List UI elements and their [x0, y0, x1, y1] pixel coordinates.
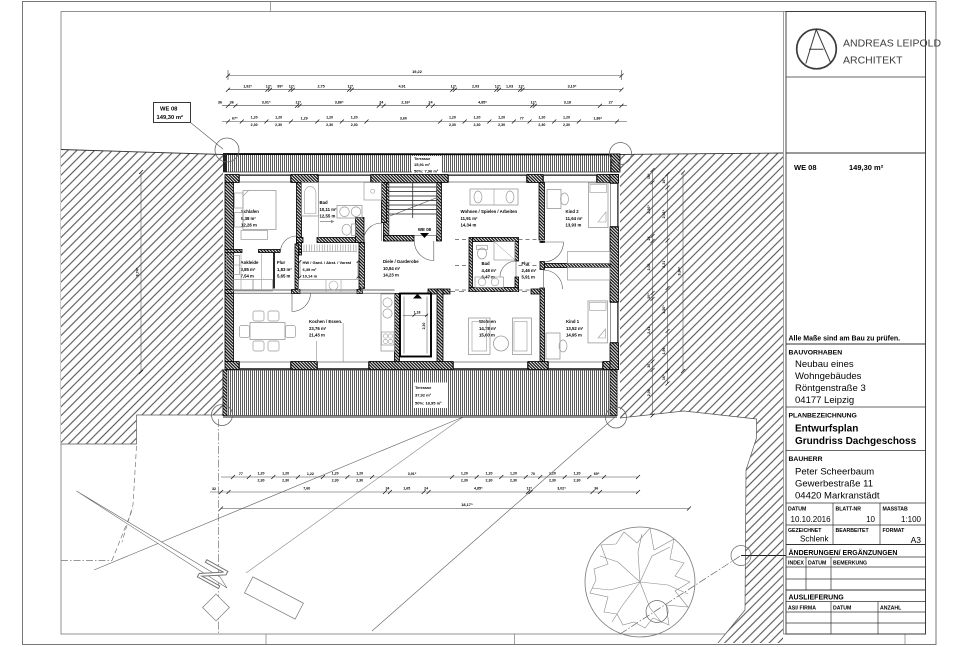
svg-text:1,83 m²: 1,83 m² [277, 267, 292, 272]
svg-text:14,23 m: 14,23 m [383, 273, 399, 278]
svg-text:11,91 m²: 11,91 m² [461, 216, 479, 221]
svg-text:1,22: 1,22 [307, 472, 314, 476]
svg-text:2,30: 2,30 [498, 123, 505, 127]
svg-text:1:100: 1:100 [901, 515, 922, 524]
svg-text:BAUVORHABEN: BAUVORHABEN [789, 350, 843, 357]
svg-text:19,22: 19,22 [412, 69, 423, 74]
svg-text:2,30: 2,30 [538, 123, 545, 127]
svg-text:1,29: 1,29 [301, 117, 308, 121]
svg-text:Bad: Bad [320, 200, 328, 205]
svg-text:2,30: 2,30 [332, 479, 339, 483]
svg-text:GEZEICHNET: GEZEICHNET [788, 528, 822, 534]
svg-text:BAUHERR: BAUHERR [789, 456, 823, 463]
svg-text:Peter Scheerbaum: Peter Scheerbaum [795, 467, 874, 478]
svg-text:3,02⁵: 3,02⁵ [557, 487, 566, 491]
svg-text:2,36⁵: 2,36⁵ [647, 205, 651, 214]
svg-text:12⁵: 12⁵ [348, 84, 354, 88]
svg-text:ARCHITEKT: ARCHITEKT [843, 55, 903, 67]
svg-text:2,30: 2,30 [563, 123, 570, 127]
svg-text:Diele / Garderobe: Diele / Garderobe [383, 259, 419, 264]
svg-text:ÄNDERUNGEN/ ERGÄNZUNGEN: ÄNDERUNGEN/ ERGÄNZUNGEN [789, 549, 898, 557]
svg-text:1,20: 1,20 [538, 116, 545, 120]
svg-text:4,85⁵: 4,85⁵ [474, 487, 483, 491]
svg-text:2,30: 2,30 [356, 479, 363, 483]
svg-text:DATUM: DATUM [833, 606, 851, 612]
svg-text:Neubau eines: Neubau eines [795, 359, 854, 370]
svg-text:10,11 m²: 10,11 m² [320, 207, 338, 212]
svg-text:2,30: 2,30 [275, 123, 282, 127]
svg-text:2,03: 2,03 [472, 84, 479, 88]
svg-text:DATUM: DATUM [788, 507, 806, 513]
svg-text:23,76 m²: 23,76 m² [309, 326, 327, 331]
svg-text:INDEX: INDEX [788, 561, 804, 567]
svg-text:99⁵: 99⁵ [277, 84, 283, 88]
svg-text:1,20: 1,20 [251, 116, 258, 120]
svg-text:149,30 m²: 149,30 m² [157, 114, 183, 121]
svg-text:7,54 m: 7,54 m [241, 274, 255, 279]
svg-text:1,20: 1,20 [449, 116, 456, 120]
svg-text:7,60: 7,60 [303, 487, 310, 491]
svg-text:1,86⁵: 1,86⁵ [594, 117, 603, 121]
svg-text:3,86⁵: 3,86⁵ [335, 100, 344, 104]
svg-text:2,16⁵: 2,16⁵ [401, 100, 410, 104]
svg-text:27: 27 [609, 100, 613, 104]
svg-text:70: 70 [531, 472, 535, 476]
svg-text:Flur: Flur [277, 260, 285, 265]
svg-text:1,18: 1,18 [414, 310, 421, 314]
svg-text:2,41: 2,41 [647, 327, 651, 334]
svg-text:2,30: 2,30 [474, 123, 481, 127]
svg-text:3,91⁵: 3,91⁵ [408, 472, 417, 476]
svg-text:36: 36 [230, 100, 234, 104]
svg-text:A3: A3 [911, 535, 922, 545]
svg-text:1,92⁵: 1,92⁵ [243, 84, 252, 88]
svg-text:77: 77 [239, 472, 243, 476]
svg-text:13,52 m²: 13,52 m² [566, 326, 584, 331]
svg-text:12⁵: 12⁵ [531, 100, 537, 104]
svg-text:18,17⁵: 18,17⁵ [461, 502, 473, 507]
svg-text:24: 24 [424, 487, 428, 491]
svg-text:14,34 m: 14,34 m [461, 223, 477, 228]
svg-text:50%: 7,96 m²: 50%: 7,96 m² [414, 168, 439, 173]
svg-text:Wohnen / Spielen / Arbeiten: Wohnen / Spielen / Arbeiten [461, 209, 518, 214]
svg-text:13,93 m: 13,93 m [566, 223, 582, 228]
svg-text:ASI/ FIRMA: ASI/ FIRMA [788, 606, 816, 612]
svg-text:1,20: 1,20 [282, 471, 289, 475]
svg-text:4,48 m²: 4,48 m² [482, 268, 497, 273]
svg-text:12⁵: 12⁵ [518, 84, 524, 88]
svg-text:04420 Markranstädt: 04420 Markranstädt [795, 491, 880, 502]
svg-text:Röntgenstraße 3: Röntgenstraße 3 [795, 383, 866, 394]
svg-text:WE 08: WE 08 [160, 107, 178, 113]
svg-text:Entwurfsplan: Entwurfsplan [795, 424, 858, 435]
svg-text:1,20: 1,20 [356, 471, 363, 475]
svg-text:37,92 m²: 37,92 m² [415, 393, 432, 398]
svg-text:ANDREAS LEIPOLD: ANDREAS LEIPOLD [843, 38, 941, 50]
svg-text:10.10.2016: 10.10.2016 [791, 515, 832, 524]
svg-text:AUSLIEFERUNG: AUSLIEFERUNG [789, 595, 845, 602]
svg-text:24: 24 [647, 237, 651, 241]
svg-text:1,20: 1,20 [574, 471, 581, 475]
svg-text:12,55 m: 12,55 m [320, 214, 336, 219]
svg-text:12⁵: 12⁵ [266, 84, 272, 88]
svg-text:DATUM: DATUM [808, 561, 826, 567]
svg-text:15,60 m: 15,60 m [479, 333, 495, 338]
svg-text:1,20: 1,20 [326, 116, 333, 120]
svg-text:Schlenk: Schlenk [800, 535, 829, 544]
svg-text:2,21: 2,21 [662, 261, 666, 268]
svg-text:2,30: 2,30 [282, 479, 289, 483]
svg-text:Kind 2: Kind 2 [566, 209, 580, 214]
svg-text:12⁵: 12⁵ [451, 84, 457, 88]
svg-text:32: 32 [212, 487, 216, 491]
svg-text:3,01⁵: 3,01⁵ [262, 100, 271, 104]
svg-text:1,20: 1,20 [275, 116, 282, 120]
svg-text:1,20: 1,20 [474, 116, 481, 120]
svg-text:16⁵: 16⁵ [662, 374, 666, 380]
svg-text:149,30 m²: 149,30 m² [849, 163, 884, 172]
svg-text:1,20: 1,20 [461, 471, 468, 475]
svg-text:36: 36 [647, 364, 651, 368]
svg-text:2,30: 2,30 [486, 479, 493, 483]
svg-text:3,60: 3,60 [400, 117, 407, 121]
svg-text:69⁵: 69⁵ [594, 472, 600, 476]
svg-text:1,65: 1,65 [403, 487, 410, 491]
svg-text:BEMERKUNG: BEMERKUNG [833, 561, 867, 567]
svg-text:Schlafen: Schlafen [241, 209, 259, 214]
svg-text:1,36⁵: 1,36⁵ [662, 305, 666, 314]
svg-text:12⁵: 12⁵ [495, 84, 501, 88]
svg-text:5,91 m: 5,91 m [522, 275, 536, 280]
svg-text:4,85⁵: 4,85⁵ [478, 100, 487, 104]
svg-text:ANZAHL: ANZAHL [880, 606, 902, 612]
svg-text:15,91 m²: 15,91 m² [414, 162, 431, 167]
svg-text:2,30: 2,30 [574, 479, 581, 483]
svg-text:Kind 1: Kind 1 [566, 319, 580, 324]
svg-text:1,20: 1,20 [332, 471, 339, 475]
svg-text:FORMAT: FORMAT [883, 528, 906, 534]
svg-text:Terrasse: Terrasse [415, 385, 432, 390]
svg-text:5,65 m: 5,65 m [277, 274, 291, 279]
svg-text:2,46 m²: 2,46 m² [522, 268, 537, 273]
svg-text:10: 10 [866, 515, 875, 524]
svg-text:12⁵: 12⁵ [295, 100, 301, 104]
svg-text:3,10⁵: 3,10⁵ [568, 84, 577, 88]
svg-text:2,06: 2,06 [647, 264, 651, 271]
svg-text:Terrasse: Terrasse [414, 156, 431, 161]
svg-text:Gewerbestraße 11: Gewerbestraße 11 [795, 479, 873, 490]
svg-text:2,06: 2,06 [647, 389, 651, 396]
svg-text:1,20: 1,20 [549, 471, 556, 475]
svg-text:9,64⁵: 9,64⁵ [678, 266, 682, 275]
svg-text:MASSTAB: MASSTAB [883, 507, 909, 513]
svg-text:BEARBEITET: BEARBEITET [836, 528, 870, 534]
svg-text:6,39 m²: 6,39 m² [303, 267, 317, 272]
svg-text:14,78 m²: 14,78 m² [479, 326, 497, 331]
svg-text:Wohngebäudes: Wohngebäudes [795, 371, 862, 382]
svg-text:10,14 m: 10,14 m [303, 274, 318, 279]
svg-text:77: 77 [520, 117, 524, 121]
svg-text:2,30: 2,30 [449, 123, 456, 127]
svg-text:HW / Gard. / Abst. / Vorrat: HW / Gard. / Abst. / Vorrat [303, 260, 352, 265]
svg-text:2,01⁵: 2,01⁵ [662, 209, 666, 218]
svg-text:2,30: 2,30 [549, 479, 556, 483]
svg-text:04177 Leipzig: 04177 Leipzig [795, 395, 854, 406]
svg-text:30⁵: 30⁵ [647, 293, 651, 299]
svg-text:21,43 m: 21,43 m [309, 333, 325, 338]
svg-text:16⁵: 16⁵ [662, 178, 666, 184]
svg-text:16⁵: 16⁵ [647, 173, 651, 179]
svg-text:WE 08: WE 08 [794, 163, 817, 172]
svg-text:PLANBEZEICHNUNG: PLANBEZEICHNUNG [789, 413, 857, 420]
svg-text:2,30: 2,30 [422, 323, 426, 330]
svg-text:9,74⁵: 9,74⁵ [136, 267, 140, 276]
svg-text:2,75: 2,75 [317, 84, 324, 88]
svg-text:Kochen / Essen.: Kochen / Essen. [309, 319, 342, 324]
svg-text:BLATT-NR: BLATT-NR [836, 507, 862, 513]
svg-text:2,30: 2,30 [326, 123, 333, 127]
svg-text:12⁵: 12⁵ [526, 487, 532, 491]
svg-text:14,95 m: 14,95 m [566, 333, 582, 338]
svg-text:2,30: 2,30 [258, 479, 265, 483]
svg-text:36: 36 [594, 487, 598, 491]
svg-text:4,91: 4,91 [398, 84, 405, 88]
svg-text:36: 36 [218, 100, 222, 104]
svg-text:2,30: 2,30 [251, 123, 258, 127]
svg-text:67⁵: 67⁵ [232, 117, 238, 121]
svg-text:1,20: 1,20 [258, 471, 265, 475]
svg-text:1,20: 1,20 [563, 116, 570, 120]
svg-text:1,20: 1,20 [498, 116, 505, 120]
svg-text:1,03: 1,03 [506, 84, 513, 88]
svg-text:Bad: Bad [482, 261, 490, 266]
svg-text:12⁵: 12⁵ [289, 84, 295, 88]
svg-text:WE 08: WE 08 [418, 227, 432, 232]
svg-text:Grundriss Dachgeschoss: Grundriss Dachgeschoss [795, 436, 917, 447]
svg-text:3,85 m²: 3,85 m² [241, 267, 256, 272]
svg-text:2,30: 2,30 [510, 479, 517, 483]
svg-text:24: 24 [385, 487, 389, 491]
svg-text:50%: 18,95 m²: 50%: 18,95 m² [415, 400, 442, 405]
svg-text:10,84 m²: 10,84 m² [383, 266, 401, 271]
svg-text:11,64 m²: 11,64 m² [566, 216, 584, 221]
svg-text:1,96: 1,96 [662, 348, 666, 355]
svg-text:1,20: 1,20 [351, 116, 358, 120]
svg-text:Flur: Flur [522, 261, 530, 266]
svg-text:Alle Maße sind am Bau zu prüfe: Alle Maße sind am Bau zu prüfen. [789, 336, 901, 343]
svg-text:2,30: 2,30 [351, 123, 358, 127]
svg-text:2,30: 2,30 [461, 479, 468, 483]
svg-text:1,20: 1,20 [510, 471, 517, 475]
svg-text:Ankleide: Ankleide [241, 260, 260, 265]
svg-text:3,18: 3,18 [564, 100, 571, 104]
svg-text:1,20: 1,20 [486, 471, 493, 475]
